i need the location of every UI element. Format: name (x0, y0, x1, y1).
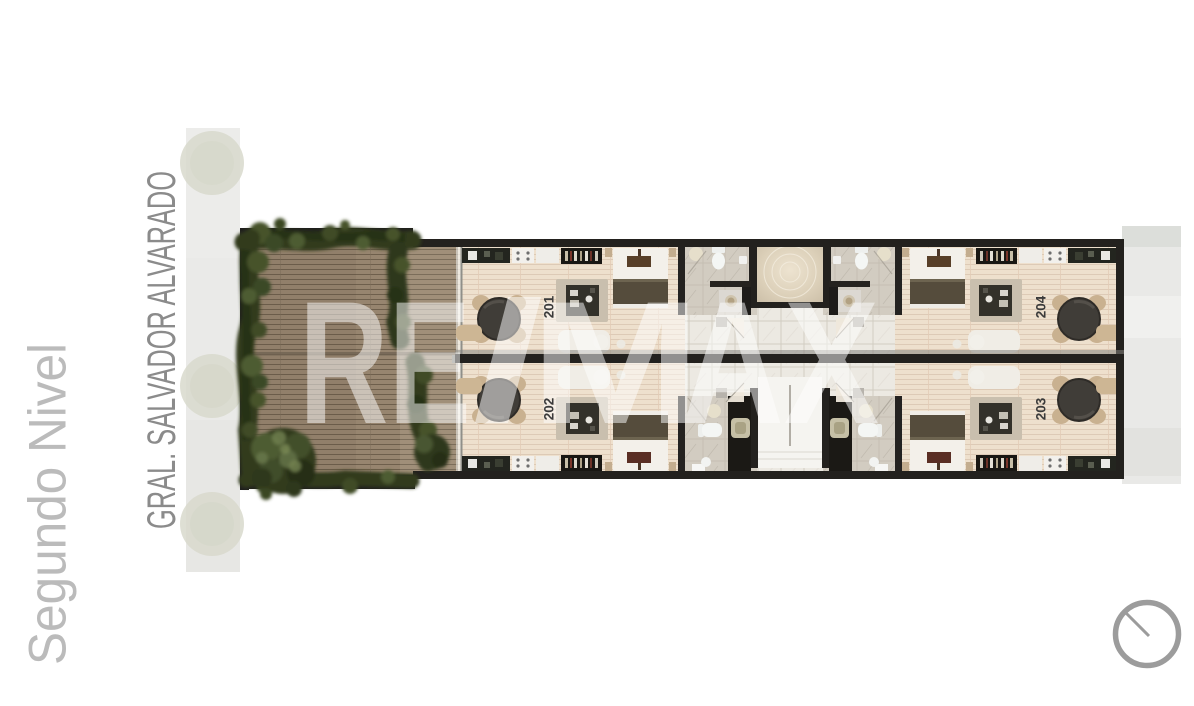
svg-text:AX: AX (681, 266, 879, 461)
svg-text:201: 201 (542, 295, 557, 318)
svg-text:RE: RE (299, 266, 471, 461)
svg-text:202: 202 (542, 398, 557, 421)
svg-text:M: M (530, 266, 701, 461)
svg-text:204: 204 (1034, 295, 1049, 318)
svg-text:203: 203 (1034, 397, 1049, 420)
svg-text:Segundo Nivel: Segundo Nivel (19, 343, 78, 665)
svg-text:GRAL. SALVADOR ALVARADO: GRAL. SALVADOR ALVARADO (140, 171, 184, 529)
